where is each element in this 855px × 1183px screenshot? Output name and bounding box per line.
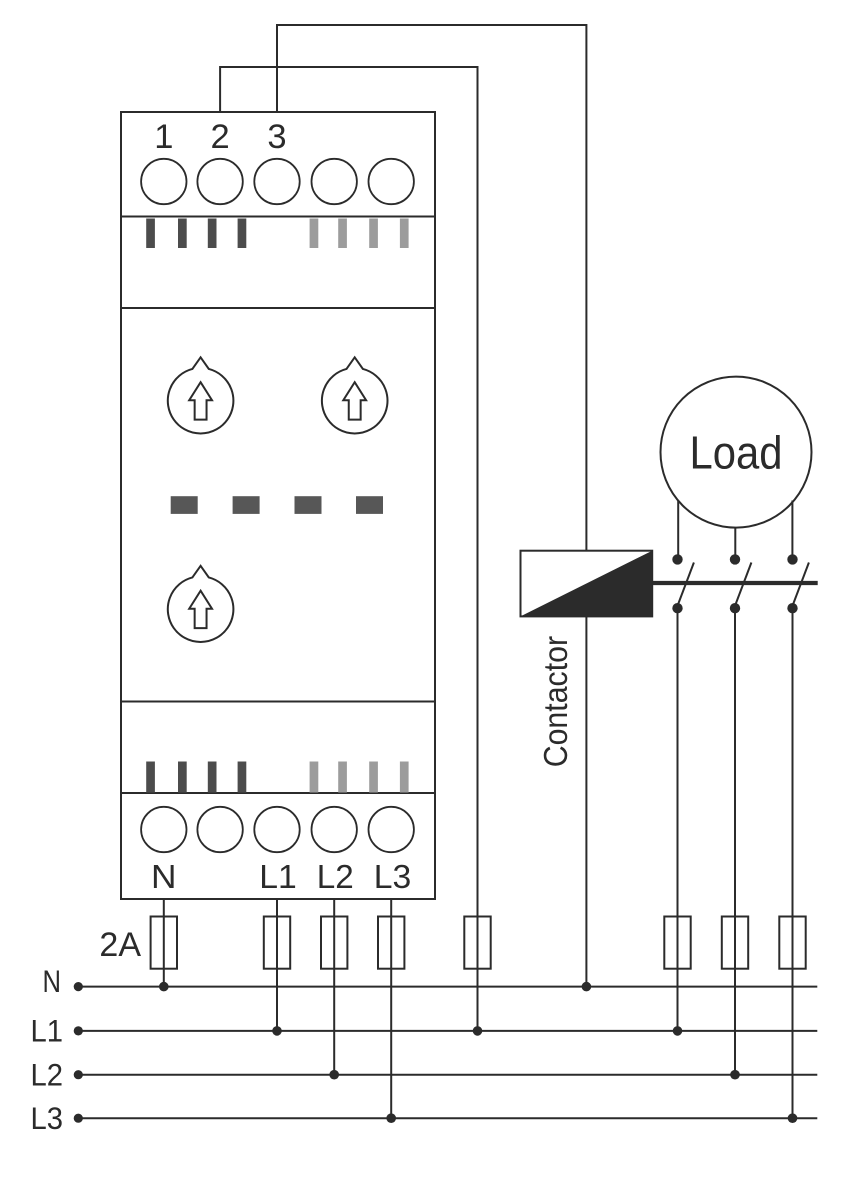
svg-text:2A: 2A — [99, 926, 141, 964]
svg-text:L3: L3 — [374, 859, 412, 896]
svg-text:L3: L3 — [31, 1100, 64, 1136]
svg-text:Load: Load — [690, 427, 783, 479]
svg-text:N: N — [43, 963, 62, 999]
svg-text:1: 1 — [154, 118, 173, 156]
svg-text:L2: L2 — [31, 1056, 64, 1092]
svg-text:2: 2 — [211, 118, 230, 156]
svg-text:N: N — [151, 859, 177, 896]
svg-text:L2: L2 — [317, 859, 354, 896]
svg-text:Contactor: Contactor — [537, 636, 574, 767]
svg-text:L1: L1 — [259, 859, 297, 896]
svg-text:L1: L1 — [31, 1013, 64, 1049]
svg-text:3: 3 — [267, 118, 286, 156]
